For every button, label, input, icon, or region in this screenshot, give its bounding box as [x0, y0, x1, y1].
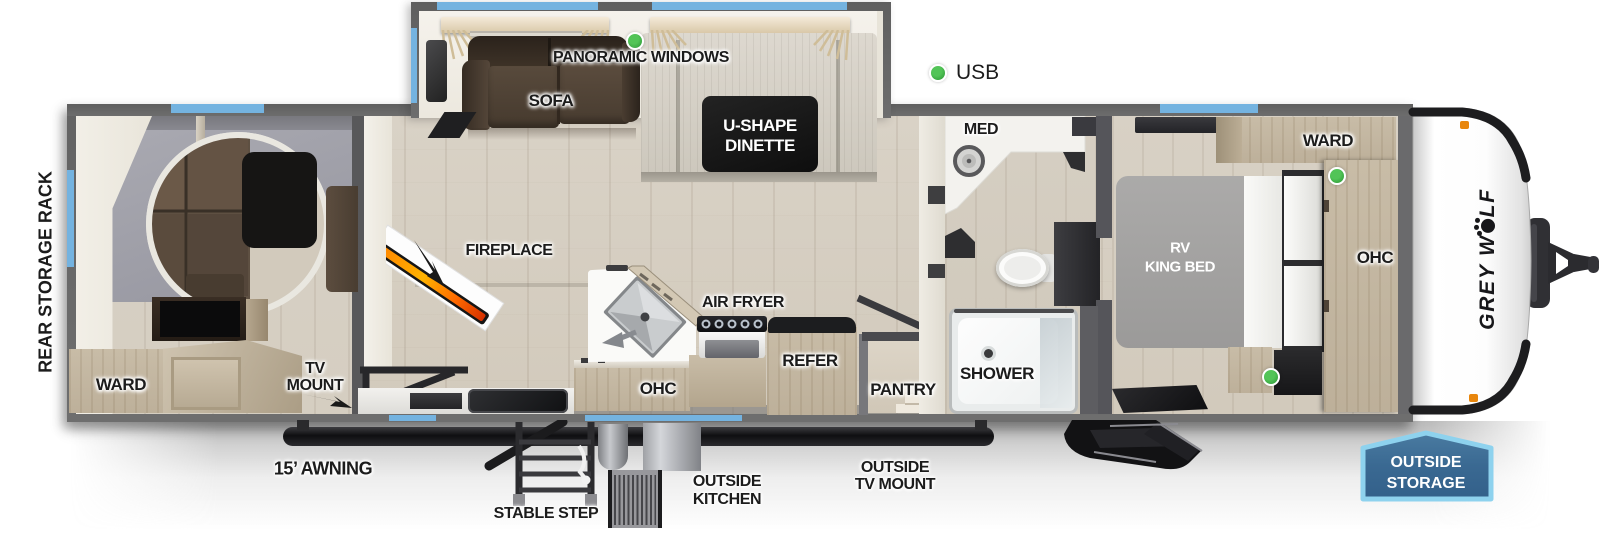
svg-text:OUTSIDE: OUTSIDE: [1390, 454, 1461, 471]
svg-text:STORAGE: STORAGE: [1387, 475, 1466, 492]
